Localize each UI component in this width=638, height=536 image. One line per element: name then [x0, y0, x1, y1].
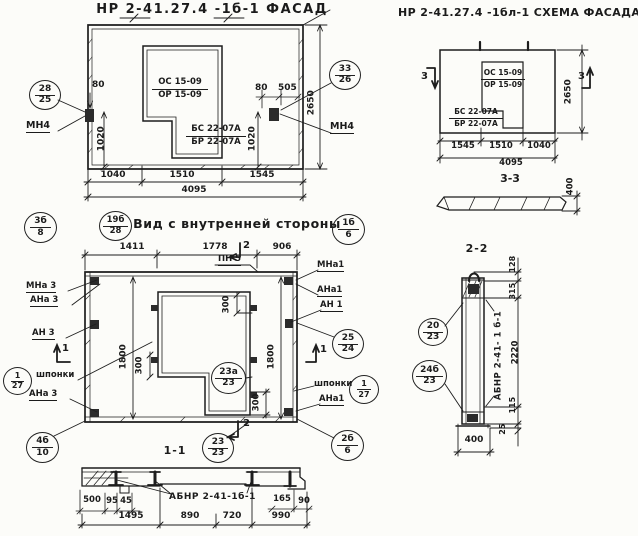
scheme-section-mark-right: 3	[578, 72, 585, 83]
marker-bottom-value: 8	[37, 228, 43, 238]
inner-right-25-24-marker: 25 24	[332, 329, 364, 359]
marker-bottom-value: 25	[39, 96, 52, 106]
section-2-2-dim-115: 115	[509, 392, 517, 418]
facade-title: НР 2-41.27.4 -1б-1 ФАСАД	[86, 3, 338, 17]
marker-top-value: 2б	[337, 435, 358, 446]
scheme-sill-mark: БС 22-07А БР 22-07А	[449, 108, 503, 128]
scheme-title: НР 2-41.27.4 -1бл-1 СХЕМА ФАСАДА	[398, 7, 638, 19]
inner-view-linework	[54, 243, 334, 440]
section-1-1-title: 1-1	[158, 445, 192, 457]
marker-top-value: 3б	[30, 217, 51, 228]
section-2-2-title: 2-2	[460, 243, 494, 255]
marker-bottom-value: 28	[110, 227, 122, 236]
facade-dim-1020-left: 1020	[97, 123, 106, 155]
marker-bottom-value: 23	[212, 449, 225, 459]
marker-bottom-value: 23	[222, 379, 235, 389]
inner-section-mark-1-left: 1	[62, 344, 69, 355]
section-1-1-dim-90: 90	[295, 497, 313, 506]
section-2-2-24b-23-marker: 24б 23	[412, 360, 447, 392]
inner-left-shponki-label: шпонки	[36, 371, 74, 380]
inner-right-an1-label: АН 1	[320, 301, 343, 312]
section-3-3-profile	[437, 191, 580, 215]
inner-right-keys-marker: 1 27	[349, 375, 379, 404]
facade-dim-1020-right: 1020	[248, 123, 257, 155]
opening-mark-or: ОР 15-09	[481, 80, 525, 90]
facade-dim-505: 505	[278, 84, 297, 93]
inner-marker-1b-6: 1б 6	[332, 214, 365, 245]
scheme-dim-1040: 1040	[521, 142, 557, 151]
inner-corner-23a-23-marker: 23а 23	[211, 362, 246, 394]
section-1-1-dim-500: 500	[81, 496, 103, 505]
marker-bottom-value: 6	[344, 446, 350, 456]
inner-23-23-marker: 23 23	[202, 433, 234, 463]
facade-dim-1040: 1040	[95, 171, 131, 180]
facade-anchor-label-right: МН4	[330, 122, 354, 134]
scheme-dim-1510: 1510	[483, 142, 519, 151]
marker-bottom-value: 24	[342, 345, 355, 355]
inner-right-ana1-bottom-label: АНа1	[319, 395, 344, 406]
facade-dim-2650: 2650	[307, 86, 316, 120]
inner-left-an3-label: АН 3	[32, 329, 55, 340]
section-2-2-dim-128: 128	[509, 251, 517, 277]
inner-left-keys-marker: 1 27	[3, 367, 32, 395]
facade-sill-mark: БС 22-07А БР 22-07А	[186, 125, 246, 148]
section-3-3-dim-400: 400	[567, 171, 576, 201]
section-1-1-part-label: АБНР 2-41-1б-1	[169, 493, 256, 502]
marker-bottom-value: 23	[427, 333, 440, 343]
section-2-2-dim-25: 25	[499, 418, 507, 440]
marker-bottom-value: 27	[12, 382, 23, 391]
facade-dim-1545: 1545	[244, 171, 280, 180]
inner-left-ana3-top-label: АНа 3	[30, 296, 58, 307]
inner-dim-1800-right: 1800	[267, 339, 276, 375]
section-2-2-dim-315: 315	[509, 278, 517, 304]
facade-opening-mark: ОС 15-09 ОР 15-09	[152, 78, 208, 101]
inner-dim-906: 906	[264, 243, 300, 252]
inner-section-mark-2-top: 2	[243, 241, 250, 252]
scheme-dim-2650: 2650	[564, 75, 573, 109]
marker-top-value: 1	[357, 380, 371, 390]
inner-dim-1800-left: 1800	[119, 339, 128, 375]
scheme-opening-mark: ОС 15-09 ОР 15-09	[481, 69, 525, 89]
inner-marker-3b-8: 3б 8	[24, 212, 57, 243]
section-1-1-dim-890: 890	[172, 512, 208, 521]
inner-dim-1778: 1778	[197, 243, 233, 252]
inner-right-corner-marker: 2б 6	[331, 430, 364, 461]
marker-top-value: 1б	[338, 219, 359, 230]
marker-top-value: 23	[208, 438, 229, 449]
marker-bottom-value: 27	[358, 390, 369, 399]
facade-marker-right: 33 26	[329, 60, 361, 90]
section-1-1-dim-45: 45	[118, 497, 134, 506]
marker-top-value: 19б	[103, 216, 129, 226]
marker-bottom-value: 26	[339, 76, 352, 86]
section-2-2-20-23-marker: 20 23	[418, 318, 448, 346]
marker-top-value: 20	[423, 322, 444, 333]
marker-top-value: 23а	[215, 368, 242, 379]
inner-dim-1411: 1411	[114, 243, 150, 252]
section-1-1-dim-720: 720	[214, 512, 250, 521]
inner-left-corner-marker: 4б 10	[26, 432, 59, 463]
sill-mark-br: БР 22-07А	[186, 137, 246, 148]
marker-top-value: 33	[335, 65, 356, 76]
facade-dim-80-right: 80	[255, 84, 268, 93]
section-2-2-dim-400: 400	[458, 436, 490, 445]
opening-mark-os: ОС 15-09	[481, 69, 525, 80]
marker-bottom-value: 6	[345, 230, 351, 240]
sill-mark-bs: БС 22-07А	[449, 108, 503, 119]
inner-section-mark-1-right: 1	[320, 345, 327, 356]
sill-mark-br: БР 22-07А	[449, 119, 503, 129]
inner-left-ana3-bottom-label: АНа 3	[29, 390, 57, 401]
section-1-1-dim-1495: 1495	[113, 512, 149, 521]
facade-dim-total: 4095	[176, 186, 212, 195]
marker-top-value: 25	[338, 334, 359, 345]
blueprint-canvas: НР 2-41.27.4 -1б-1 ФАСАД 28 25 80 МН4 10…	[0, 0, 638, 536]
inner-dim-300-bottom: 300	[253, 388, 262, 416]
inner-right-mna1-label: МНа1	[317, 261, 344, 272]
marker-bottom-value: 23	[423, 377, 436, 387]
inner-pn5-label: ПН 5	[218, 255, 241, 266]
inner-left-mna3-label: МНа 3	[26, 282, 56, 293]
inner-section-mark-2-bottom: 2	[243, 419, 250, 430]
opening-mark-os: ОС 15-09	[152, 78, 208, 90]
facade-anchor-label-left: МН4	[26, 121, 50, 133]
scheme-dim-1545: 1545	[445, 142, 481, 151]
marker-top-value: 28	[35, 85, 56, 96]
sill-mark-bs: БС 22-07А	[186, 125, 246, 137]
scheme-dim-total: 4095	[493, 159, 529, 168]
section-3-3-label: 3-3	[494, 173, 526, 185]
marker-top-value: 4б	[32, 437, 53, 448]
inner-dim-300-left: 300	[136, 351, 145, 379]
marker-bottom-value: 10	[36, 448, 49, 458]
section-2-2-dim-2220: 2220	[512, 337, 521, 367]
facade-dim-80-left: 80	[92, 81, 105, 90]
inner-view-title: Вид с внутренней стороны	[128, 217, 346, 230]
facade-marker-left: 28 25	[29, 80, 61, 110]
section-1-1-dim-990: 990	[263, 512, 299, 521]
inner-right-ana1-top-label: АНа1	[317, 286, 342, 297]
section-1-1-dim-165: 165	[271, 495, 293, 504]
marker-top-value: 24б	[416, 366, 443, 377]
inner-right-shponki-label: шпонки	[314, 380, 352, 389]
scheme-section-mark-left: 3	[421, 72, 428, 83]
facade-dim-1510: 1510	[164, 171, 200, 180]
opening-mark-or: ОР 15-09	[152, 90, 208, 101]
inner-dim-300-top: 300	[223, 290, 232, 318]
section-2-2-part-label: АБНР 2-41- 1 б-1	[495, 298, 504, 412]
